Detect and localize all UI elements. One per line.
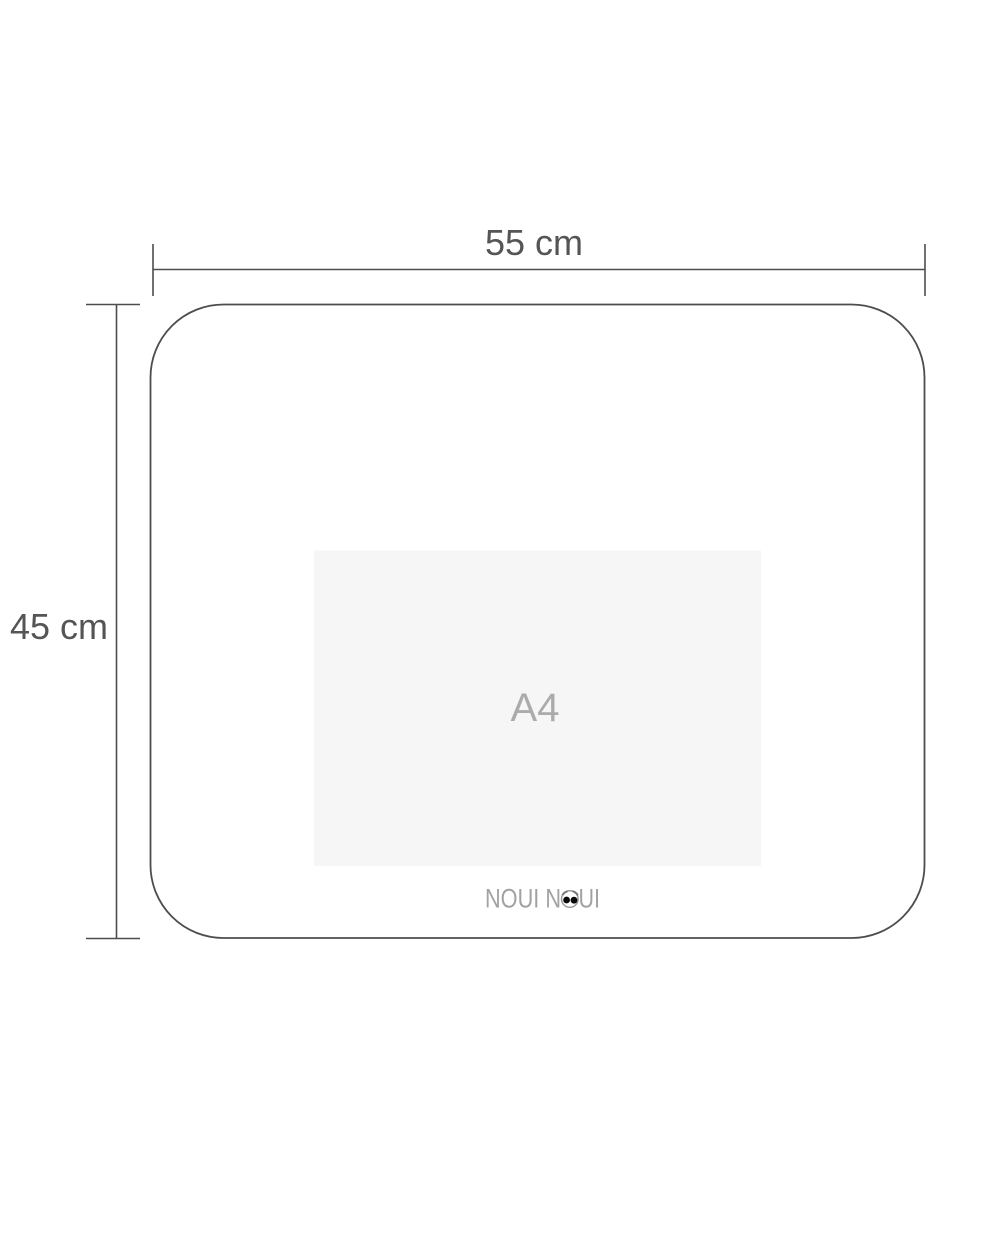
svg-text:55 cm: 55 cm (485, 222, 583, 263)
svg-text:UI: UI (579, 884, 601, 914)
svg-text:45 cm: 45 cm (10, 606, 108, 647)
svg-text:NOUI N: NOUI N (485, 884, 561, 914)
svg-text:A4: A4 (511, 686, 560, 730)
